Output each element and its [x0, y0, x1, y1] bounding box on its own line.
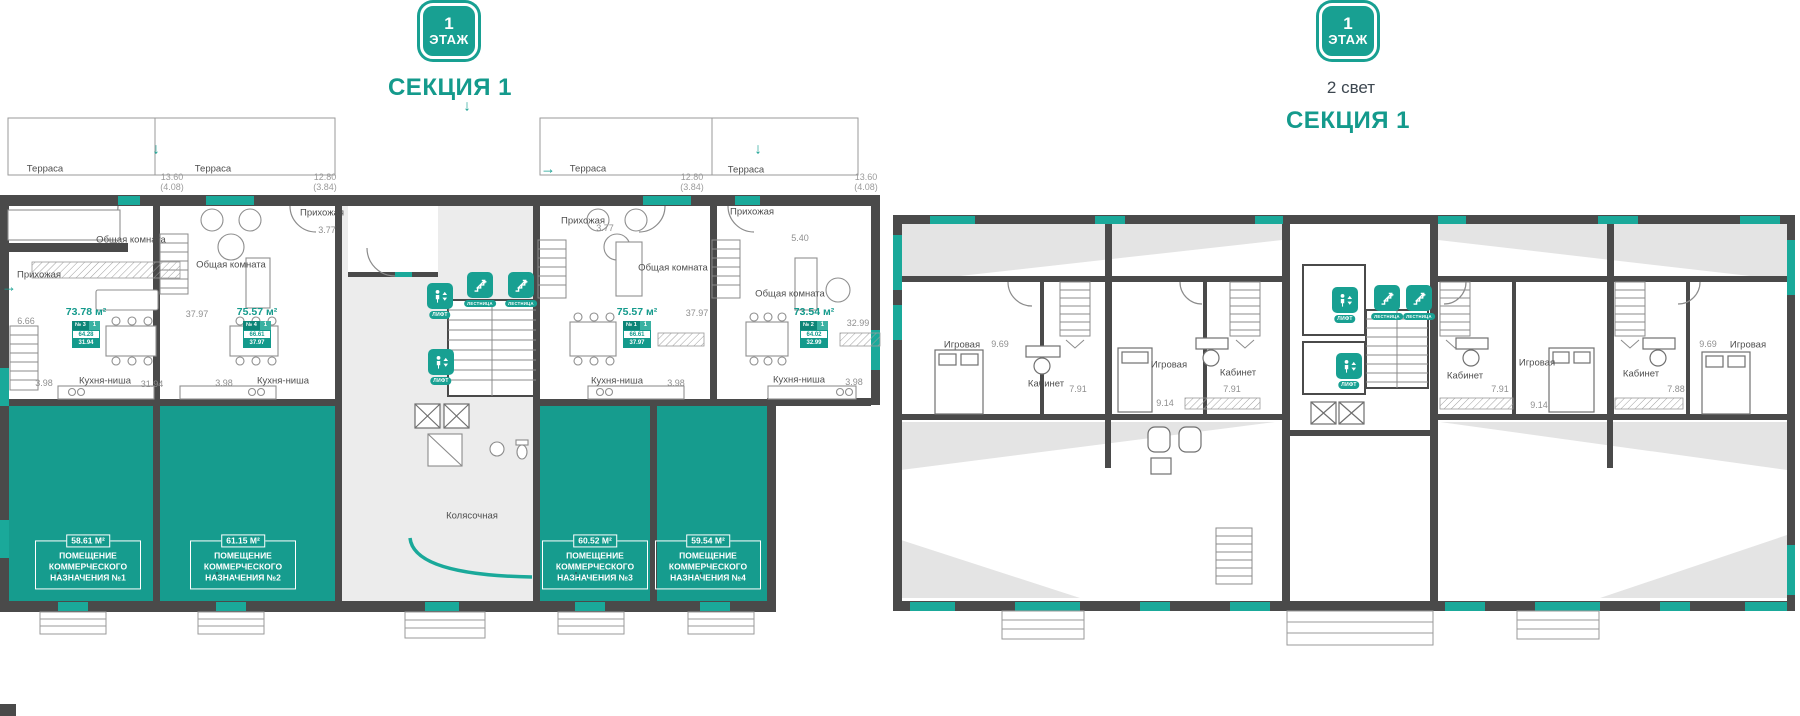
commercial-unit-1[interactable]: 58.61 м² ПОМЕЩЕНИЕ КОММЕРЧЕСКОГО НАЗНАЧЕ… [35, 540, 141, 589]
apartment-badge[interactable]: № 21 64.02 32.99 [800, 321, 828, 348]
inner-area: 64.02 [800, 330, 828, 339]
inner-area: 66.61 [243, 330, 271, 339]
living-room-label: Общая комната [755, 289, 825, 300]
lift-icon [427, 283, 453, 309]
living-room-label: Общая комната [196, 260, 266, 271]
room-name: Кабинет [1220, 368, 1256, 379]
apartment-badge[interactable]: № 11 66.61 37.97 [623, 321, 651, 348]
commercial-label: ПОМЕЩЕНИЕ КОММЕРЧЕСКОГО НАЗНАЧЕНИЯ №4 [658, 550, 758, 583]
dim-reduced: (3.84) [680, 182, 704, 192]
stairs-icon [508, 272, 534, 298]
entrance-arrow-down-icon: ↓ [754, 141, 762, 158]
terrace-label: Терраса [728, 165, 764, 176]
entrance-arrow-right-icon: → [541, 161, 556, 178]
terrace-label: Терраса [570, 164, 606, 175]
hall-area: 6.66 [17, 316, 35, 326]
room-name: Игровая [1730, 340, 1766, 351]
commercial-label: ПОМЕЩЕНИЕ КОММЕРЧЕСКОГО НАЗНАЧЕНИЯ №3 [545, 550, 645, 583]
floorplan-page: 1 ЭТАЖ СЕКЦИЯ 1 1 ЭТАЖ 2 свет СЕКЦИЯ 1 Т… [0, 0, 1800, 716]
lift-label: лифт [1338, 381, 1359, 389]
room-area: 7.91 [1223, 384, 1241, 394]
apartment-badge[interactable]: № 31 64.28 31.94 [72, 321, 100, 348]
stairs-label: лестница [464, 300, 496, 307]
dim-reduced: (3.84) [313, 182, 337, 192]
apartment-number: № 2 [800, 321, 817, 330]
kitchen-area: 3.98 [667, 378, 685, 388]
terrace-dimension: 13.60(4.08) [854, 172, 878, 192]
door-arrow-up-icon: ↑ [56, 569, 61, 579]
right-plan-porches [1002, 611, 1599, 645]
kitchen-area: 3.98 [845, 377, 863, 387]
stairs-label: лестница [1371, 313, 1403, 320]
stroller-room-label: Колясочная [446, 511, 498, 522]
commercial-area: 59.54 м² [686, 534, 730, 547]
living-room-label: Общая комната [638, 263, 708, 274]
room-name: Кабинет [1623, 369, 1659, 380]
floor-number: 1 [423, 15, 475, 33]
dim-value: 13.60 [161, 172, 184, 182]
door-arrow-up-icon: ↑ [574, 569, 579, 579]
left-plan-porches [40, 612, 754, 638]
living-area: 37.97 [623, 339, 651, 348]
apartment-number: № 3 [72, 321, 89, 330]
terrace-label: Терраса [195, 164, 231, 175]
section-title-left: СЕКЦИЯ 1 [388, 74, 512, 102]
floor-word: ЭТАЖ [1322, 33, 1374, 47]
door-arrow-up-icon: ↑ [215, 569, 220, 579]
commercial-area: 61.15 м² [221, 534, 265, 547]
room-name: Игровая [1151, 360, 1187, 371]
apartment-total-area: 73.54 м² [794, 306, 834, 318]
rooms-count: 1 [640, 321, 651, 330]
section-title-right: СЕКЦИЯ 1 [1286, 107, 1410, 135]
room-name: Кабинет [1447, 371, 1483, 382]
lift-label: лифт [1334, 315, 1355, 323]
commercial-area: 58.61 м² [66, 534, 110, 547]
commercial-label: ПОМЕЩЕНИЕ КОММЕРЧЕСКОГО НАЗНАЧЕНИЯ №1 [38, 550, 138, 583]
living-area: 32.99 [800, 339, 828, 348]
stairs-icon [1374, 285, 1400, 311]
room-area: 9.14 [1530, 400, 1548, 410]
terrace-dimension: 12.80(3.84) [680, 172, 704, 192]
hall-label: Прихожая [730, 207, 774, 218]
commercial-unit-3[interactable]: 60.52 м² ПОМЕЩЕНИЕ КОММЕРЧЕСКОГО НАЗНАЧЕ… [542, 540, 648, 589]
stairs-icon [1406, 285, 1432, 311]
room-area: 9.14 [1156, 398, 1174, 408]
floor-word: ЭТАЖ [423, 33, 475, 47]
kitchen-label: Кухня-ниша [79, 376, 131, 387]
hall-label: Прихожая [300, 208, 344, 219]
lift-label: лифт [429, 311, 450, 319]
room-area: 31.94 [141, 379, 164, 389]
room-area: 37.97 [186, 309, 209, 319]
inner-area: 64.28 [72, 330, 100, 339]
light-note: 2 свет [1327, 78, 1375, 98]
stairs-label: лестница [1403, 313, 1435, 320]
apartment-badge[interactable]: № 41 66.61 37.97 [243, 321, 271, 348]
room-area: 37.97 [686, 308, 709, 318]
kitchen-label: Кухня-ниша [773, 375, 825, 386]
living-area: 31.94 [72, 339, 100, 348]
room-area: 7.88 [1667, 384, 1685, 394]
hall-area: 5.40 [791, 233, 809, 243]
lift-icon [1332, 287, 1358, 313]
dim-value: 13.60 [855, 172, 878, 182]
floor-badge-left[interactable]: 1 ЭТАЖ [420, 3, 478, 59]
dim-value: 12.80 [681, 172, 704, 182]
kitchen-label: Кухня-ниша [591, 376, 643, 387]
kitchen-area: 3.98 [215, 378, 233, 388]
stairs-label: лестница [505, 300, 537, 307]
hall-area: 3.77 [318, 225, 336, 235]
kitchen-label: Кухня-ниша [257, 376, 309, 387]
hall-label: Прихожая [17, 270, 61, 281]
living-area: 37.97 [243, 339, 271, 348]
rooms-count: 1 [817, 321, 828, 330]
kitchen-area: 3.98 [35, 378, 53, 388]
inner-area: 66.61 [623, 330, 651, 339]
dim-value: 12.80 [314, 172, 337, 182]
apartment-number: № 4 [243, 321, 260, 330]
room-area: 7.91 [1069, 384, 1087, 394]
lift-label: лифт [430, 377, 451, 385]
entrance-arrow-down-icon: ↓ [152, 141, 160, 158]
terrace-label: Терраса [27, 164, 63, 175]
room-name: Игровая [944, 340, 980, 351]
floor-badge-right[interactable]: 1 ЭТАЖ [1319, 3, 1377, 59]
commercial-label: ПОМЕЩЕНИЕ КОММЕРЧЕСКОГО НАЗНАЧЕНИЯ №2 [193, 550, 293, 583]
apartment-total-area: 75.57 м² [237, 306, 277, 318]
commercial-unit-4[interactable]: 59.54 м² ПОМЕЩЕНИЕ КОММЕРЧЕСКОГО НАЗНАЧЕ… [655, 540, 761, 589]
entrance-arrow-right-icon: → [2, 279, 17, 296]
rooms-count: 1 [89, 321, 100, 330]
room-area: 9.69 [1699, 339, 1717, 349]
stairs-icon [467, 272, 493, 298]
room-area: 9.69 [991, 339, 1009, 349]
dim-reduced: (4.08) [854, 182, 878, 192]
apartment-total-area: 75.57 м² [617, 306, 657, 318]
living-room-label: Общая комната [96, 235, 166, 246]
terrace-dimension: 12.80(3.84) [313, 172, 337, 192]
room-name: Игровая [1519, 358, 1555, 369]
apartment-number: № 1 [623, 321, 640, 330]
room-area: 7.91 [1491, 384, 1509, 394]
commercial-unit-2[interactable]: 61.15 м² ПОМЕЩЕНИЕ КОММЕРЧЕСКОГО НАЗНАЧЕ… [190, 540, 296, 589]
commercial-area: 60.52 м² [573, 534, 617, 547]
terrace-dimension: 13.60(4.08) [160, 172, 184, 192]
lift-icon [1336, 353, 1362, 379]
entrance-arrow-down-icon: ↓ [463, 98, 471, 115]
rooms-count: 1 [260, 321, 271, 330]
dim-reduced: (4.08) [160, 182, 184, 192]
hall-area: 3.77 [596, 223, 614, 233]
lift-icon [428, 349, 454, 375]
apartment-total-area: 73.78 м² [66, 306, 106, 318]
room-area: 32.99 [847, 318, 870, 328]
floor-number: 1 [1322, 15, 1374, 33]
room-name: Кабинет [1028, 379, 1064, 390]
door-arrow-up-icon: ↑ [699, 569, 704, 579]
